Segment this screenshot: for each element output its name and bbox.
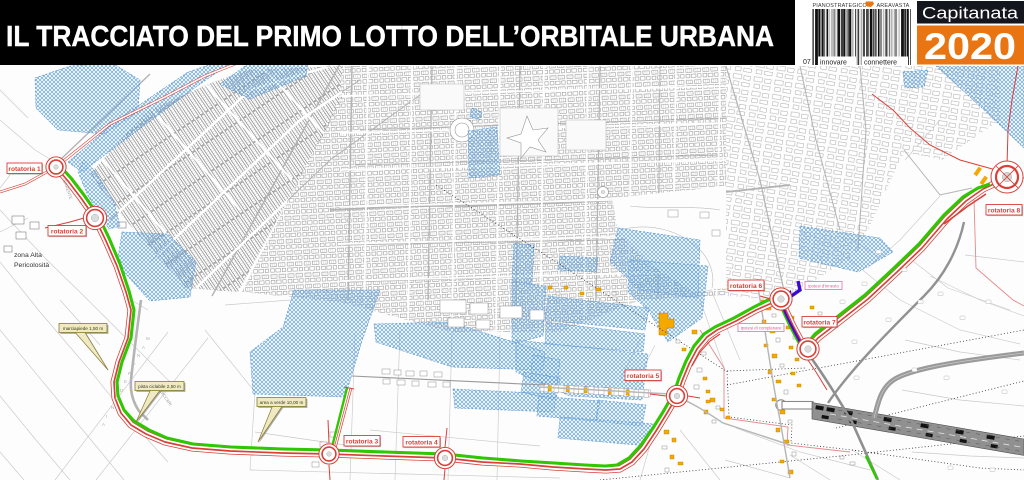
- svg-text:AREAVASTA: AREAVASTA: [877, 3, 910, 9]
- svg-text:N: N: [137, 353, 140, 358]
- svg-text:Pericolosità: Pericolosità: [14, 262, 49, 269]
- svg-text:A: A: [142, 345, 145, 350]
- svg-text:Capitanata: Capitanata: [922, 5, 1019, 23]
- svg-text:connettere: connettere: [864, 60, 897, 67]
- svg-text:rotatoria 8: rotatoria 8: [988, 207, 1021, 214]
- svg-text:rotatoria 7: rotatoria 7: [803, 319, 836, 326]
- svg-text:area a verde 10,00 m: area a verde 10,00 m: [260, 400, 304, 405]
- svg-text:pista ciclabile 2,50 m: pista ciclabile 2,50 m: [138, 384, 181, 389]
- svg-text:I: I: [106, 414, 107, 419]
- svg-text:rotatoria 4: rotatoria 4: [405, 439, 438, 446]
- svg-text:D: D: [120, 388, 123, 393]
- svg-text:O: O: [115, 396, 119, 401]
- svg-text:zona Alta: zona Alta: [14, 252, 42, 259]
- svg-text:E: E: [124, 379, 127, 384]
- svg-text:M: M: [146, 336, 150, 341]
- svg-text:R: R: [128, 371, 131, 376]
- svg-text:rotatoria 2: rotatoria 2: [51, 228, 84, 235]
- svg-text:IL TRACCIATO DEL PRIMO LOTTO D: IL TRACCIATO DEL PRIMO LOTTO DELL’ORBITA…: [6, 21, 774, 53]
- svg-text:rotatoria 3: rotatoria 3: [346, 438, 379, 445]
- svg-text:2020: 2020: [924, 26, 1016, 67]
- svg-text:marciapiede 1,50 m: marciapiede 1,50 m: [63, 326, 104, 331]
- svg-text:07: 07: [803, 59, 811, 66]
- svg-text:PIANOSTRATEGICO: PIANOSTRATEGICO: [813, 3, 867, 9]
- svg-text:A: A: [102, 422, 105, 427]
- svg-text:ipotesi di complanare: ipotesi di complanare: [741, 325, 782, 330]
- svg-text:rotatoria 1: rotatoria 1: [8, 166, 41, 173]
- svg-text:rotatoria 6: rotatoria 6: [730, 283, 763, 290]
- svg-text:ipotesi d'innesto: ipotesi d'innesto: [808, 283, 839, 288]
- svg-text:F: F: [133, 362, 136, 367]
- svg-text:N: N: [111, 405, 114, 410]
- svg-text:innovare: innovare: [820, 60, 847, 67]
- svg-text:rotatoria 5: rotatoria 5: [627, 373, 660, 380]
